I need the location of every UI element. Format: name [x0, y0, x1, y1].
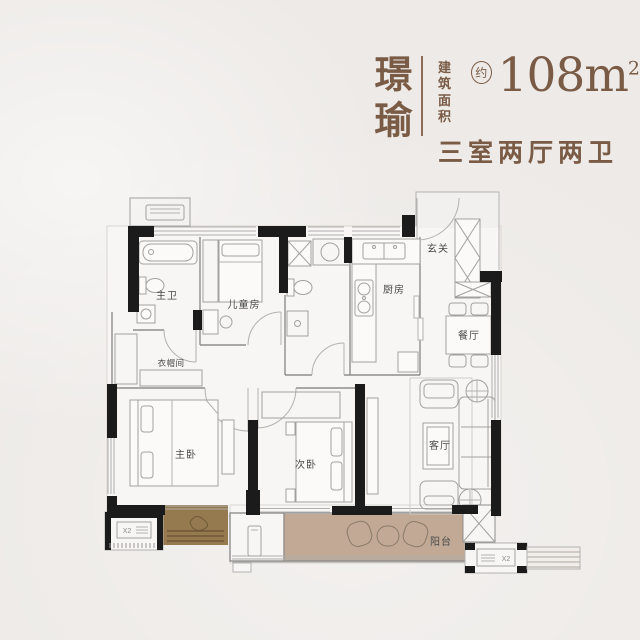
tv-console: [367, 398, 378, 494]
nightstand: [286, 489, 295, 502]
room-label-kids-room: 儿童房: [228, 298, 261, 311]
fridge: [398, 352, 418, 372]
equipment-box: [130, 198, 190, 226]
kids-bed: [219, 240, 262, 302]
master-bedroom-furniture: [130, 400, 234, 486]
headboard: [130, 400, 138, 486]
toilet: [287, 279, 294, 296]
kitchen-slide-door: [414, 296, 419, 318]
floor-plan: X2 X2: [105, 192, 580, 573]
room-label-foyer: 玄关: [427, 242, 449, 255]
room-label-master-bedroom: 主卧: [175, 448, 197, 461]
master-bed: [138, 400, 218, 486]
ac-platform-right: X2: [465, 543, 527, 573]
svg-text:X2: X2: [502, 556, 511, 563]
room-label-living: 客厅: [429, 439, 451, 452]
headboard: [344, 422, 352, 502]
area-row: 建筑 面积 约 108m2: [438, 52, 640, 125]
dresser: [222, 420, 234, 474]
area-superscript: 2: [628, 57, 640, 79]
plan-header: 璟瑜 建筑 面积 约 108m2 三室两厅两卫: [370, 52, 640, 169]
header-divider: [421, 56, 423, 136]
room-label-kitchen: 厨房: [383, 283, 405, 296]
room-label-cloakroom: 衣帽间: [157, 358, 184, 368]
svg-text:X2: X2: [123, 528, 132, 535]
nightstand: [286, 422, 295, 435]
area-value: 108m2: [498, 52, 640, 99]
room-label-second-bedroom: 次卧: [295, 458, 317, 471]
ac-platform-left: X2: [105, 512, 163, 550]
room-label-dining: 餐厅: [458, 329, 480, 342]
project-name: 璟瑜: [370, 54, 408, 169]
corridor-hatch: [527, 547, 580, 569]
bath-sink: [137, 305, 155, 323]
toilet: [139, 277, 146, 294]
desk: [203, 310, 218, 334]
step-notch: [233, 563, 251, 572]
area-label: 建筑 面积: [438, 60, 463, 125]
approx-badge: 约: [471, 61, 492, 84]
layout-spec: 三室两厅两卫: [438, 133, 640, 169]
room-label-balcony: 阳台: [430, 535, 452, 548]
room-label-master-bath: 主卫: [156, 290, 178, 302]
flower-bed: [163, 505, 228, 545]
page: { "header": { "project_name": "璟瑜", "are…: [0, 0, 640, 640]
